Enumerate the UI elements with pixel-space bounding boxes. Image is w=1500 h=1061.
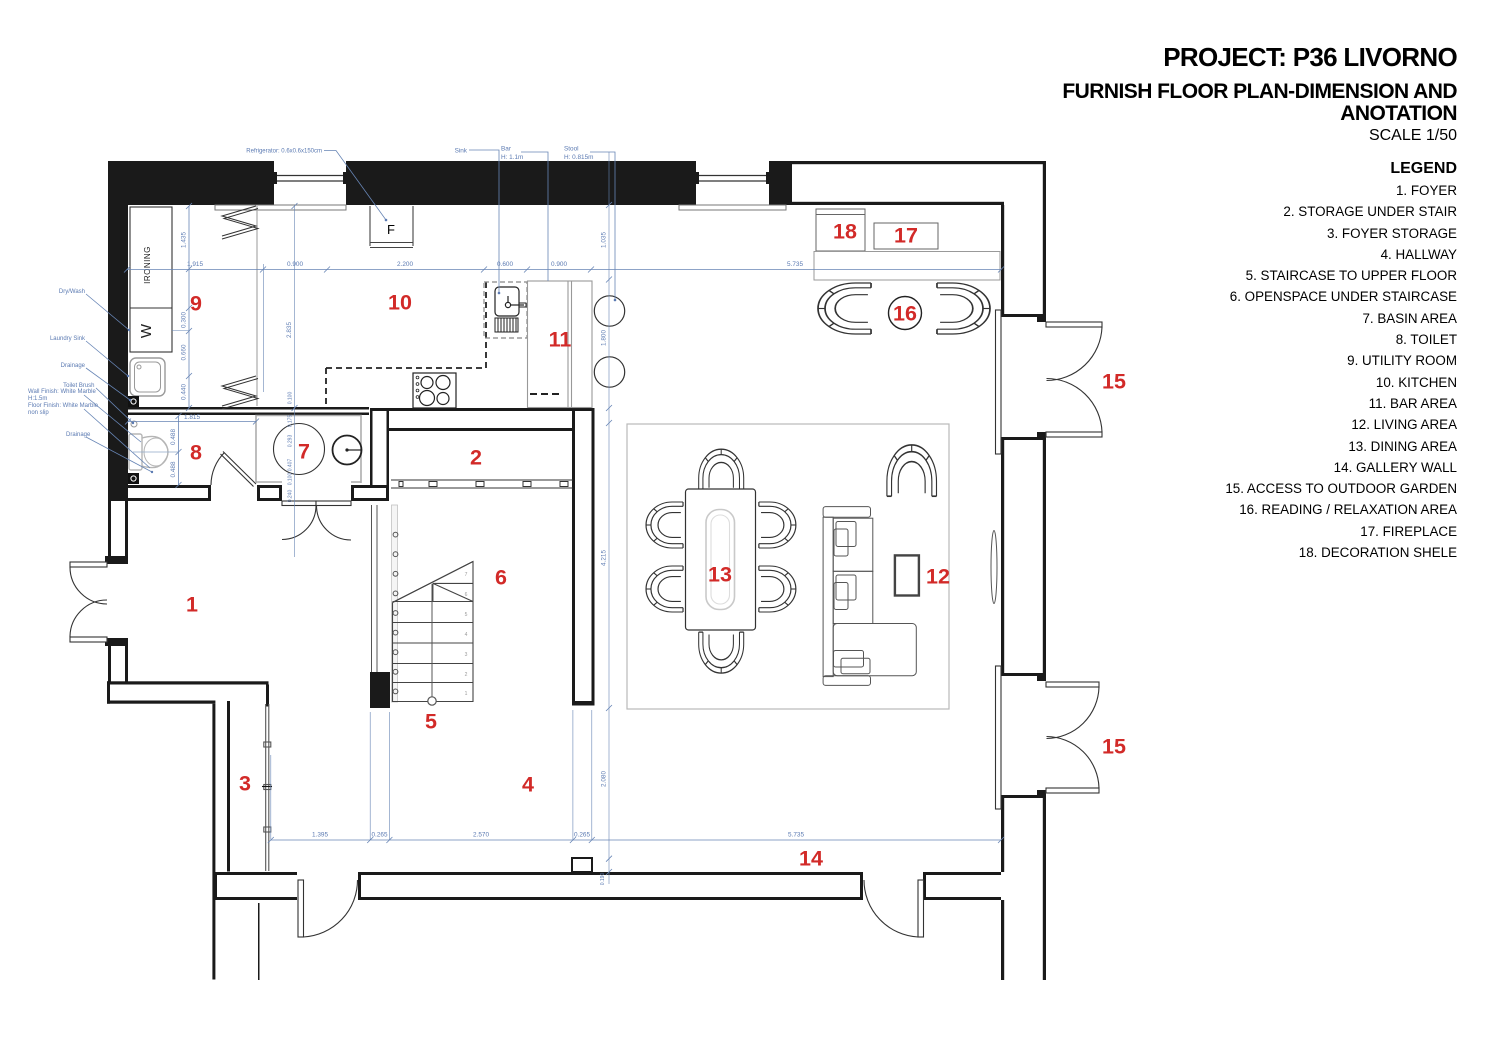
- svg-text:Wall Finish: White Marble: Wall Finish: White Marble: [28, 389, 96, 395]
- svg-text:2: 2: [470, 446, 482, 470]
- svg-text:0.190: 0.190: [600, 873, 606, 886]
- svg-text:H:1.5m: H:1.5m: [28, 396, 47, 402]
- svg-text:H: 1.1m: H: 1.1m: [501, 154, 523, 161]
- svg-text:0.600: 0.600: [497, 261, 513, 268]
- svg-text:3: 3: [465, 652, 468, 658]
- svg-text:W: W: [138, 323, 155, 338]
- svg-text:0.100: 0.100: [288, 392, 294, 405]
- svg-text:13: 13: [708, 563, 732, 587]
- svg-text:11: 11: [549, 328, 572, 352]
- svg-text:0.660: 0.660: [181, 344, 188, 360]
- svg-text:1.395: 1.395: [312, 832, 328, 839]
- svg-text:F: F: [387, 222, 395, 237]
- svg-text:2.080: 2.080: [601, 771, 608, 787]
- svg-text:Laundry Sink: Laundry Sink: [50, 336, 86, 342]
- svg-text:6: 6: [495, 566, 507, 590]
- svg-text:Drainage: Drainage: [66, 432, 91, 438]
- svg-text:IRONING: IRONING: [143, 246, 152, 284]
- svg-text:Sink: Sink: [455, 148, 468, 155]
- svg-text:Refrigerator: 0.6x0.6x150cm: Refrigerator: 0.6x0.6x150cm: [246, 149, 322, 155]
- svg-text:9: 9: [190, 292, 202, 316]
- svg-text:0.265: 0.265: [574, 832, 590, 839]
- svg-text:18: 18: [833, 220, 857, 244]
- svg-text:3: 3: [239, 772, 251, 796]
- svg-text:4: 4: [522, 773, 534, 797]
- svg-text:0.900: 0.900: [287, 261, 303, 268]
- svg-text:2.570: 2.570: [473, 832, 489, 839]
- svg-text:7: 7: [465, 572, 468, 578]
- svg-text:8: 8: [190, 441, 202, 465]
- svg-text:14: 14: [799, 847, 823, 871]
- svg-text:1.815: 1.815: [184, 414, 200, 421]
- svg-text:7: 7: [298, 440, 310, 464]
- svg-text:0.440: 0.440: [181, 384, 188, 400]
- svg-text:1: 1: [186, 593, 198, 617]
- svg-text:17: 17: [894, 224, 918, 248]
- svg-text:5: 5: [465, 612, 468, 618]
- svg-text:5.735: 5.735: [788, 832, 804, 839]
- svg-text:4.215: 4.215: [601, 550, 608, 566]
- svg-text:0.293: 0.293: [288, 435, 294, 448]
- svg-text:Floor Finish: White Marble: Floor Finish: White Marble: [28, 403, 99, 409]
- svg-text:Bar: Bar: [501, 146, 512, 153]
- svg-text:12: 12: [926, 565, 950, 589]
- svg-text:0.900: 0.900: [551, 261, 567, 268]
- svg-text:5: 5: [425, 710, 437, 734]
- svg-text:Drainage: Drainage: [61, 363, 86, 369]
- svg-text:2: 2: [465, 672, 468, 678]
- svg-text:Stool: Stool: [564, 146, 579, 153]
- svg-text:0.100: 0.100: [288, 473, 294, 486]
- svg-text:0.300: 0.300: [181, 312, 188, 328]
- svg-text:0.488: 0.488: [170, 461, 177, 477]
- svg-text:6: 6: [465, 592, 468, 598]
- svg-text:1.800: 1.800: [601, 330, 608, 346]
- svg-text:0.265: 0.265: [372, 832, 388, 839]
- svg-text:0.407: 0.407: [288, 459, 294, 472]
- svg-text:1.435: 1.435: [181, 232, 188, 248]
- svg-text:2.200: 2.200: [397, 261, 413, 268]
- svg-text:4: 4: [465, 632, 468, 638]
- svg-text:0.175: 0.175: [288, 415, 294, 428]
- svg-text:Dry/Wash: Dry/Wash: [59, 289, 85, 295]
- svg-text:10: 10: [388, 291, 412, 315]
- svg-text:H: 0.815m: H: 0.815m: [564, 154, 593, 161]
- svg-text:1.035: 1.035: [601, 232, 608, 248]
- svg-text:0.488: 0.488: [170, 429, 177, 445]
- svg-text:1: 1: [465, 691, 468, 697]
- svg-text:5.735: 5.735: [787, 261, 803, 268]
- svg-text:15: 15: [1102, 735, 1126, 759]
- svg-text:15: 15: [1102, 370, 1126, 394]
- svg-text:non slip: non slip: [28, 410, 49, 416]
- svg-text:16: 16: [893, 302, 917, 326]
- svg-text:2.835: 2.835: [286, 322, 293, 338]
- svg-text:1.915: 1.915: [187, 261, 203, 268]
- svg-text:0.240: 0.240: [288, 490, 294, 503]
